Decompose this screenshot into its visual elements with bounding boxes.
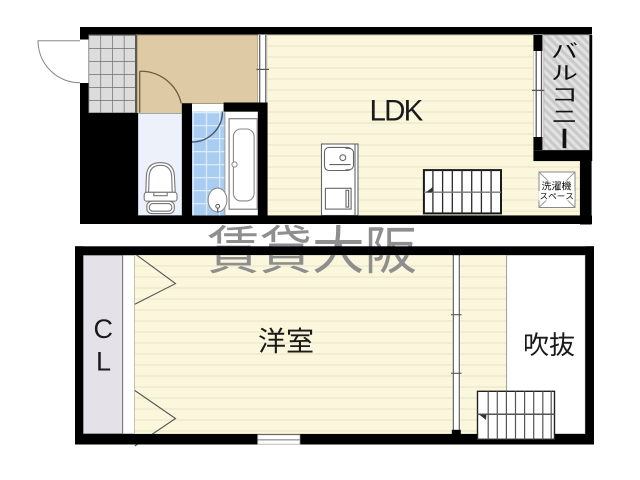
svg-text:LDK: LDK [370,95,424,128]
svg-text:L: L [96,347,111,377]
svg-text:C: C [94,314,114,344]
